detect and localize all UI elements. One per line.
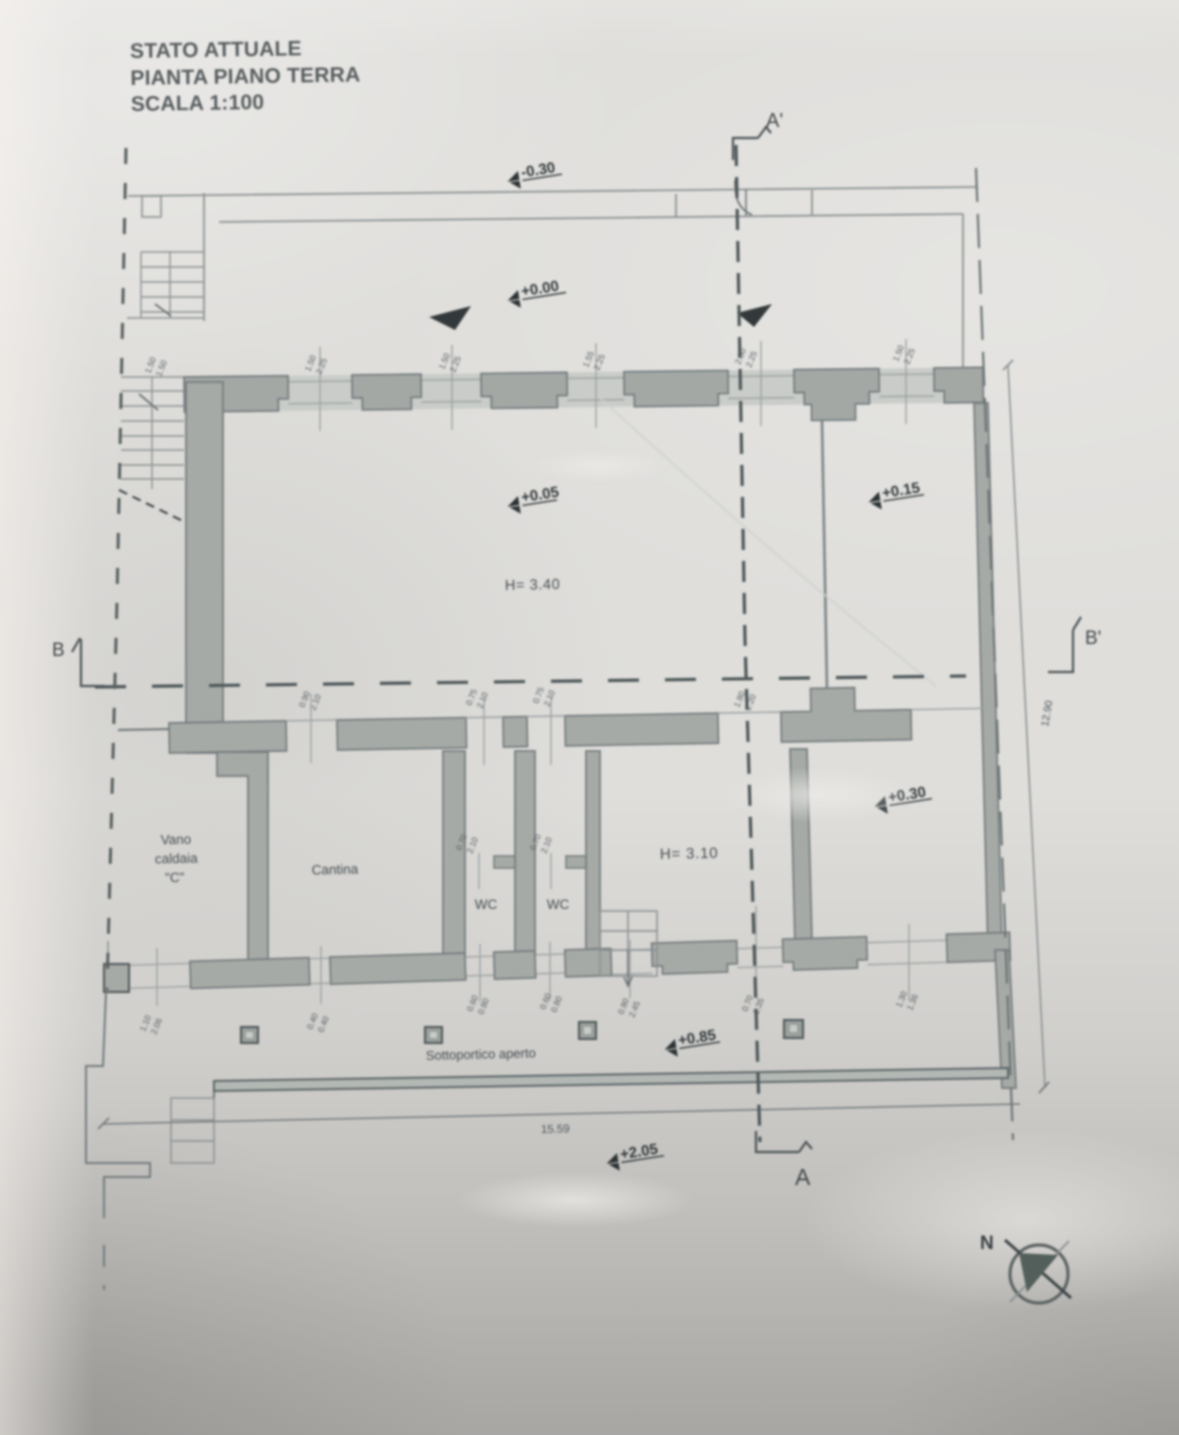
svg-text:STATO ATTUALE: STATO ATTUALE (130, 37, 302, 63)
svg-text:WC: WC (475, 897, 498, 912)
svg-text:"C": "C" (165, 870, 185, 885)
svg-text:Cantina: Cantina (311, 862, 358, 878)
svg-text:N: N (980, 1233, 994, 1254)
svg-text:A': A' (766, 110, 783, 132)
svg-text:PIANTA PIANO TERRA: PIANTA PIANO TERRA (130, 63, 360, 90)
svg-text:A: A (795, 1164, 811, 1190)
svg-text:B: B (52, 640, 65, 661)
svg-text:12.90: 12.90 (1039, 699, 1055, 727)
svg-text:H= 3.40: H= 3.40 (505, 577, 561, 594)
svg-text:SCALA 1:100: SCALA 1:100 (131, 91, 265, 116)
svg-text:15.59: 15.59 (541, 1123, 570, 1136)
svg-text:Vano: Vano (161, 832, 192, 848)
svg-text:B': B' (1085, 628, 1101, 649)
svg-text:WC: WC (547, 897, 570, 912)
svg-text:caldaia: caldaia (155, 851, 199, 867)
svg-text:Sottoportico aperto: Sottoportico aperto (426, 1045, 536, 1063)
svg-text:H= 3.10: H= 3.10 (660, 845, 719, 863)
